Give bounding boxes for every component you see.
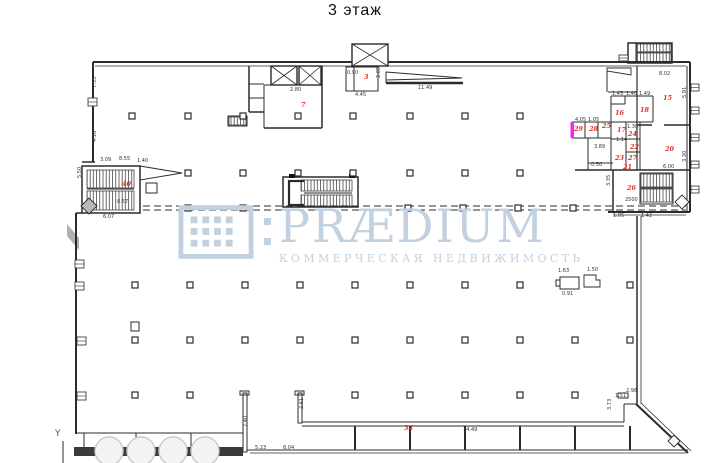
svg-text:3.73: 3.73 <box>607 399 613 410</box>
svg-text:3.30: 3.30 <box>682 151 688 162</box>
svg-text:20: 20 <box>664 145 675 153</box>
svg-text:7.35: 7.35 <box>92 77 98 88</box>
svg-text:1.63: 1.63 <box>558 268 569 274</box>
svg-text:7: 7 <box>301 101 306 109</box>
svg-text:0.50: 0.50 <box>591 162 602 168</box>
svg-text:0.91: 0.91 <box>562 291 573 297</box>
svg-text:1.14: 1.14 <box>616 137 627 143</box>
svg-text:26: 26 <box>626 184 637 192</box>
svg-text:2.61: 2.61 <box>299 398 305 409</box>
svg-text:7.40: 7.40 <box>243 416 249 427</box>
svg-text:1.30: 1.30 <box>627 124 638 130</box>
misc-texts: Y <box>54 429 61 439</box>
svg-text:8.57: 8.57 <box>117 199 128 205</box>
divider-dashed-lines <box>143 206 686 210</box>
svg-text:25: 25 <box>601 122 612 130</box>
svg-text:21: 21 <box>622 163 632 171</box>
svg-text:4.16: 4.16 <box>92 131 98 142</box>
svg-text:3.09: 3.09 <box>100 157 111 163</box>
svg-text:2.98: 2.98 <box>626 388 637 394</box>
svg-text:24: 24 <box>627 130 638 138</box>
svg-text:17: 17 <box>617 126 627 134</box>
svg-text:1.05: 1.05 <box>613 213 624 219</box>
svg-text:1.42: 1.42 <box>641 213 652 219</box>
svg-text:0.90: 0.90 <box>347 70 358 76</box>
svg-text:14.49: 14.49 <box>463 427 477 433</box>
svg-text:Y: Y <box>54 429 61 439</box>
svg-text:27: 27 <box>627 154 638 162</box>
diamond-marks <box>81 195 689 447</box>
svg-text:4.05: 4.05 <box>575 117 586 123</box>
svg-text:3.89: 3.89 <box>594 144 605 150</box>
svg-text:1.49: 1.49 <box>639 91 650 97</box>
svg-text:6.00: 6.00 <box>663 164 674 170</box>
svg-text:28: 28 <box>588 125 599 133</box>
svg-text:8.02: 8.02 <box>659 71 670 77</box>
elevator-shaft-icons <box>271 44 388 85</box>
svg-text:15: 15 <box>663 94 673 102</box>
svg-text:4.45: 4.45 <box>355 92 366 98</box>
svg-text:18: 18 <box>640 106 650 114</box>
floor-plan-page: 3 этаж 374015161817242223272125282920263… <box>0 0 710 463</box>
svg-text:16: 16 <box>615 109 625 117</box>
room-number-labels: 3740151618172422232721252829202634 <box>122 73 675 432</box>
window-ticks <box>75 55 699 400</box>
svg-text:6.07: 6.07 <box>103 214 114 220</box>
svg-text:22: 22 <box>629 143 640 151</box>
svg-text:1.40: 1.40 <box>137 158 148 164</box>
svg-text:2.05: 2.05 <box>376 67 382 78</box>
svg-text:5.91: 5.91 <box>682 87 688 98</box>
svg-text:3: 3 <box>364 73 369 81</box>
svg-text:29: 29 <box>573 125 584 133</box>
walls <box>63 52 691 463</box>
svg-text:3.35: 3.35 <box>606 175 612 186</box>
svg-text:5.50: 5.50 <box>77 167 83 178</box>
svg-text:34: 34 <box>404 424 414 432</box>
svg-text:8.55: 8.55 <box>119 156 130 162</box>
svg-text:1.05: 1.05 <box>588 117 599 123</box>
svg-text:1.40: 1.40 <box>626 91 637 97</box>
svg-text:1.51: 1.51 <box>615 393 626 399</box>
svg-text:1.50: 1.50 <box>587 267 598 273</box>
svg-text:5.23: 5.23 <box>255 445 266 451</box>
svg-text:23: 23 <box>614 154 625 162</box>
svg-text:2500: 2500 <box>625 197 638 203</box>
svg-text:40: 40 <box>122 180 132 188</box>
svg-text:8.04: 8.04 <box>283 445 294 451</box>
svg-text:1.43: 1.43 <box>612 91 623 97</box>
svg-text:2.80: 2.80 <box>290 87 301 93</box>
svg-text:11.49: 11.49 <box>418 85 432 91</box>
outline-rects <box>82 43 673 452</box>
structural-columns <box>129 113 633 398</box>
floor-plan-svg: 37401516181724222327212528292026347.354.… <box>0 0 710 463</box>
